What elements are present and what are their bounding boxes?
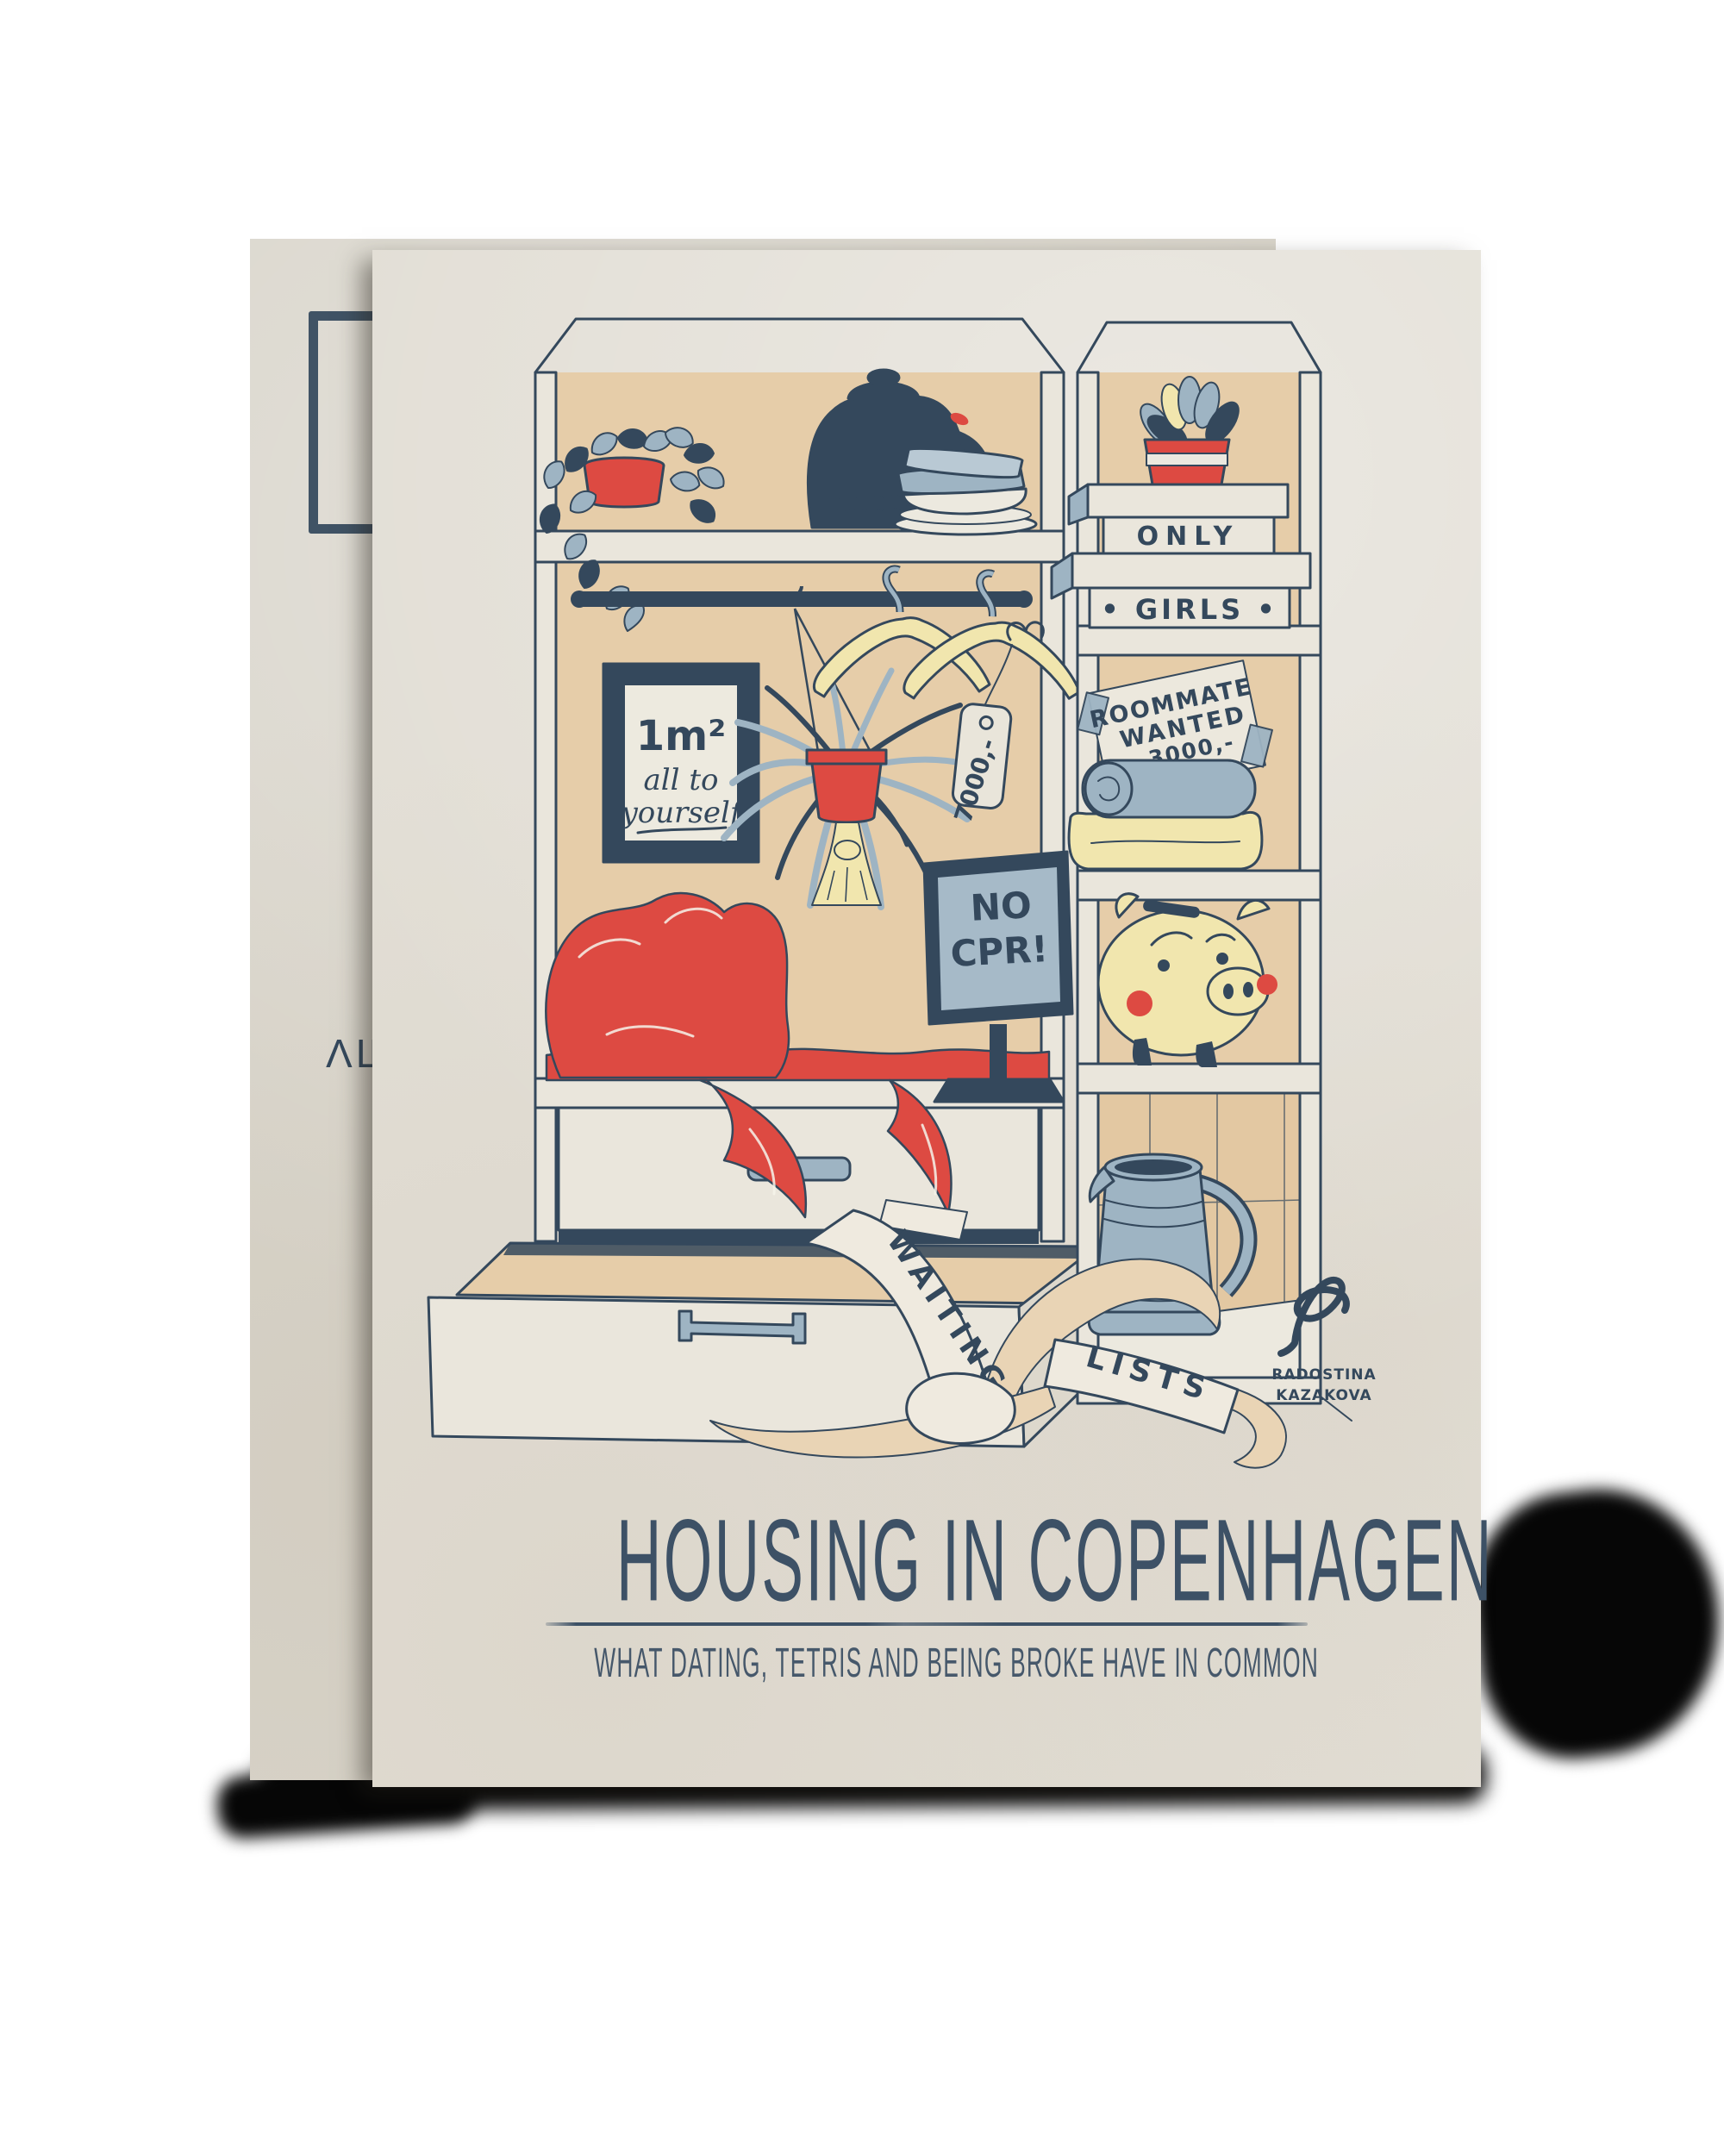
piggy-eye-right: [1216, 953, 1228, 965]
wardrobe-illustration: 00000 1m² all to yourself: [407, 302, 1476, 1526]
plant-pot: [812, 764, 881, 822]
poster-front-sheet: 00000 1m² all to yourself: [372, 250, 1481, 1787]
monitor-line2: CPR!: [949, 928, 1049, 975]
title-divider-line: [546, 1622, 1308, 1626]
right-shelf-c: [1077, 1064, 1321, 1093]
towels: [1069, 760, 1262, 869]
poster-title: HOUSING IN COPENHAGEN: [616, 1502, 1237, 1618]
top-shelf-board: [535, 531, 1064, 562]
right-shelf-b: [1077, 871, 1321, 900]
piggy-snout: [1208, 968, 1268, 1015]
right-unit-open-top: [1077, 322, 1321, 372]
poster-subtitle: WHAT DATING, TETRIS AND BEING BROKE HAVE…: [594, 1640, 1259, 1687]
plant-pot-rim: [807, 750, 886, 764]
towel-roll-end: [1085, 763, 1132, 815]
page-shadow-right: [1460, 1476, 1724, 1769]
framed-sign: 1m² all to yourself: [603, 664, 759, 862]
drawer-gap: [559, 1230, 1039, 1244]
box-only-label: ONLY: [1137, 522, 1240, 552]
box-girls-lid: [1072, 553, 1310, 588]
pitcher-opening: [1115, 1159, 1192, 1175]
sign-line3: yourself: [620, 796, 746, 830]
hanging-rail: [571, 591, 1033, 608]
plate-stack: [895, 448, 1036, 534]
sign-line2: all to: [644, 763, 719, 797]
piggy-cheek-left: [1127, 991, 1152, 1016]
right-shelf-a: [1077, 626, 1321, 655]
tassel-knot: [834, 841, 860, 859]
ribbon-loop: [907, 1373, 1015, 1443]
box-girls: • GIRLS •: [1052, 553, 1310, 628]
monitor-base: [934, 1079, 1064, 1102]
artist-name-line2: KAZAKOVA: [1276, 1387, 1371, 1404]
box-only-lid: [1088, 484, 1288, 517]
left-unit-open-top: [535, 319, 1064, 372]
artist-name-line1: RADOSTINA: [1271, 1366, 1376, 1384]
sign-line1: 1m²: [636, 712, 726, 760]
pitcher-foot: [1089, 1312, 1220, 1334]
piggy-eye-left: [1158, 959, 1170, 972]
kettle-knob: [868, 370, 899, 385]
left-unit-right-board: [1041, 372, 1064, 1241]
left-unit-left-board: [535, 372, 556, 1241]
piggy-cheek-right: [1257, 974, 1277, 995]
monitor-line1: NO: [970, 884, 1033, 929]
pothos-pot: [584, 458, 664, 507]
succulent-pot-stripe: [1146, 453, 1227, 466]
box-girls-label: • GIRLS •: [1101, 593, 1277, 626]
monitor-stand: [990, 1024, 1007, 1081]
